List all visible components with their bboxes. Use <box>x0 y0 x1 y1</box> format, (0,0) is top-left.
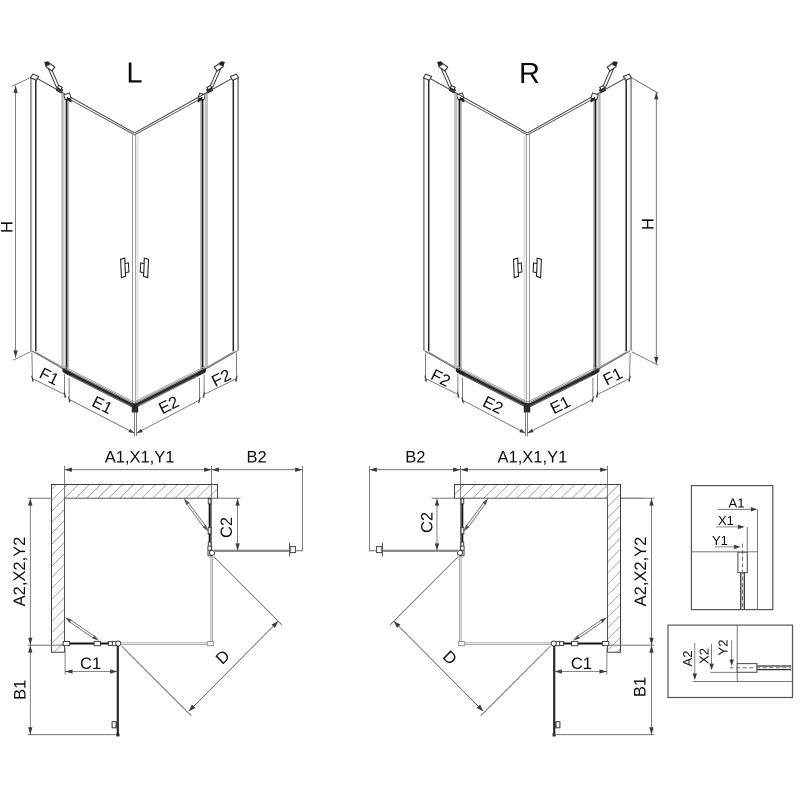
svg-text:A2,X2,Y2: A2,X2,Y2 <box>11 537 29 607</box>
svg-text:L: L <box>126 58 142 90</box>
svg-text:C1: C1 <box>80 655 101 673</box>
svg-text:A1,X1,Y1: A1,X1,Y1 <box>105 449 175 467</box>
svg-text:B2: B2 <box>247 448 267 466</box>
svg-text:A1: A1 <box>729 495 745 510</box>
svg-text:C1: C1 <box>571 655 592 673</box>
svg-text:B1: B1 <box>11 680 29 700</box>
svg-text:A2: A2 <box>680 651 695 667</box>
svg-text:H: H <box>640 218 658 230</box>
svg-text:X2: X2 <box>697 648 712 664</box>
svg-text:C2: C2 <box>419 512 437 533</box>
svg-text:Y2: Y2 <box>716 640 731 656</box>
svg-text:B1: B1 <box>632 677 650 697</box>
svg-text:A1,X1,Y1: A1,X1,Y1 <box>498 449 568 467</box>
svg-text:Y1: Y1 <box>712 533 728 548</box>
svg-text:C2: C2 <box>218 517 236 538</box>
svg-text:X1: X1 <box>718 513 734 528</box>
svg-text:B2: B2 <box>405 448 425 466</box>
svg-text:R: R <box>519 58 540 90</box>
svg-text:H: H <box>0 221 16 233</box>
svg-text:A2,X2,Y2: A2,X2,Y2 <box>632 537 650 607</box>
